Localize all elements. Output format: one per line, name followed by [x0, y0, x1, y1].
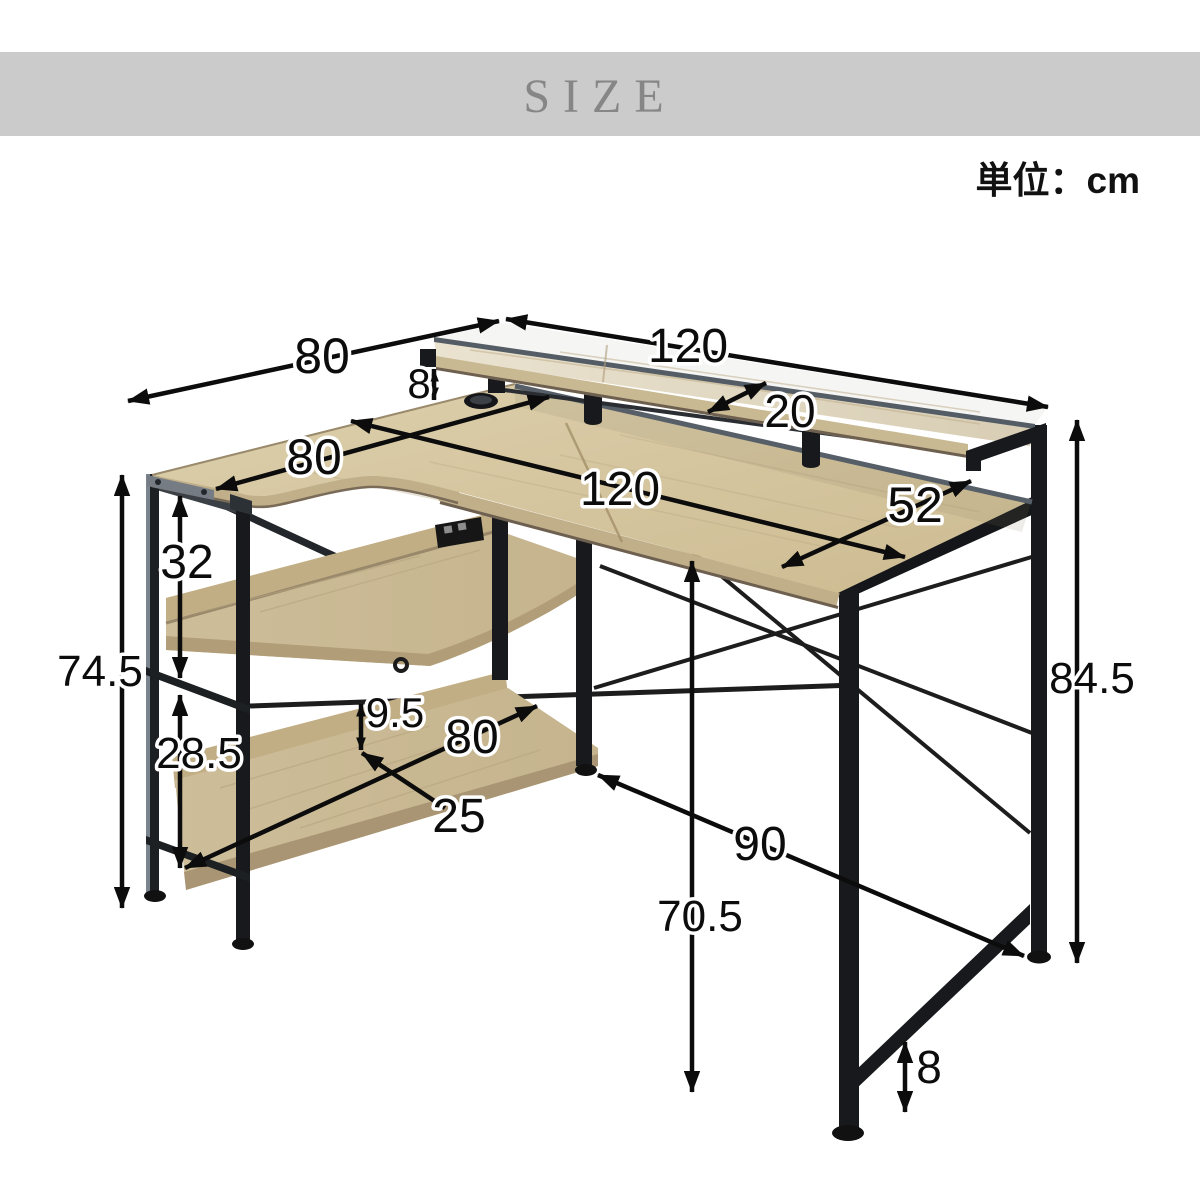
svg-text:80: 80	[294, 328, 350, 384]
svg-text:28.5: 28.5	[156, 729, 242, 778]
svg-text:9.5: 9.5	[366, 689, 424, 736]
svg-text:8: 8	[407, 360, 430, 407]
svg-text:25: 25	[432, 790, 485, 843]
svg-text:120: 120	[580, 463, 660, 516]
svg-text:20: 20	[764, 385, 815, 437]
svg-text:SIZE: SIZE	[523, 70, 676, 123]
svg-text:74.5: 74.5	[57, 647, 143, 696]
svg-text:52: 52	[887, 477, 943, 533]
svg-text:8: 8	[916, 1041, 942, 1093]
svg-text:単位：cm: 単位：cm	[976, 160, 1140, 201]
svg-text:120: 120	[648, 320, 728, 373]
svg-text:84.5: 84.5	[1049, 654, 1135, 703]
svg-text:80: 80	[445, 711, 498, 764]
svg-text:80: 80	[286, 429, 342, 485]
svg-text:32: 32	[160, 536, 213, 589]
svg-text:90: 90	[733, 818, 786, 871]
svg-text:70.5: 70.5	[657, 892, 743, 941]
